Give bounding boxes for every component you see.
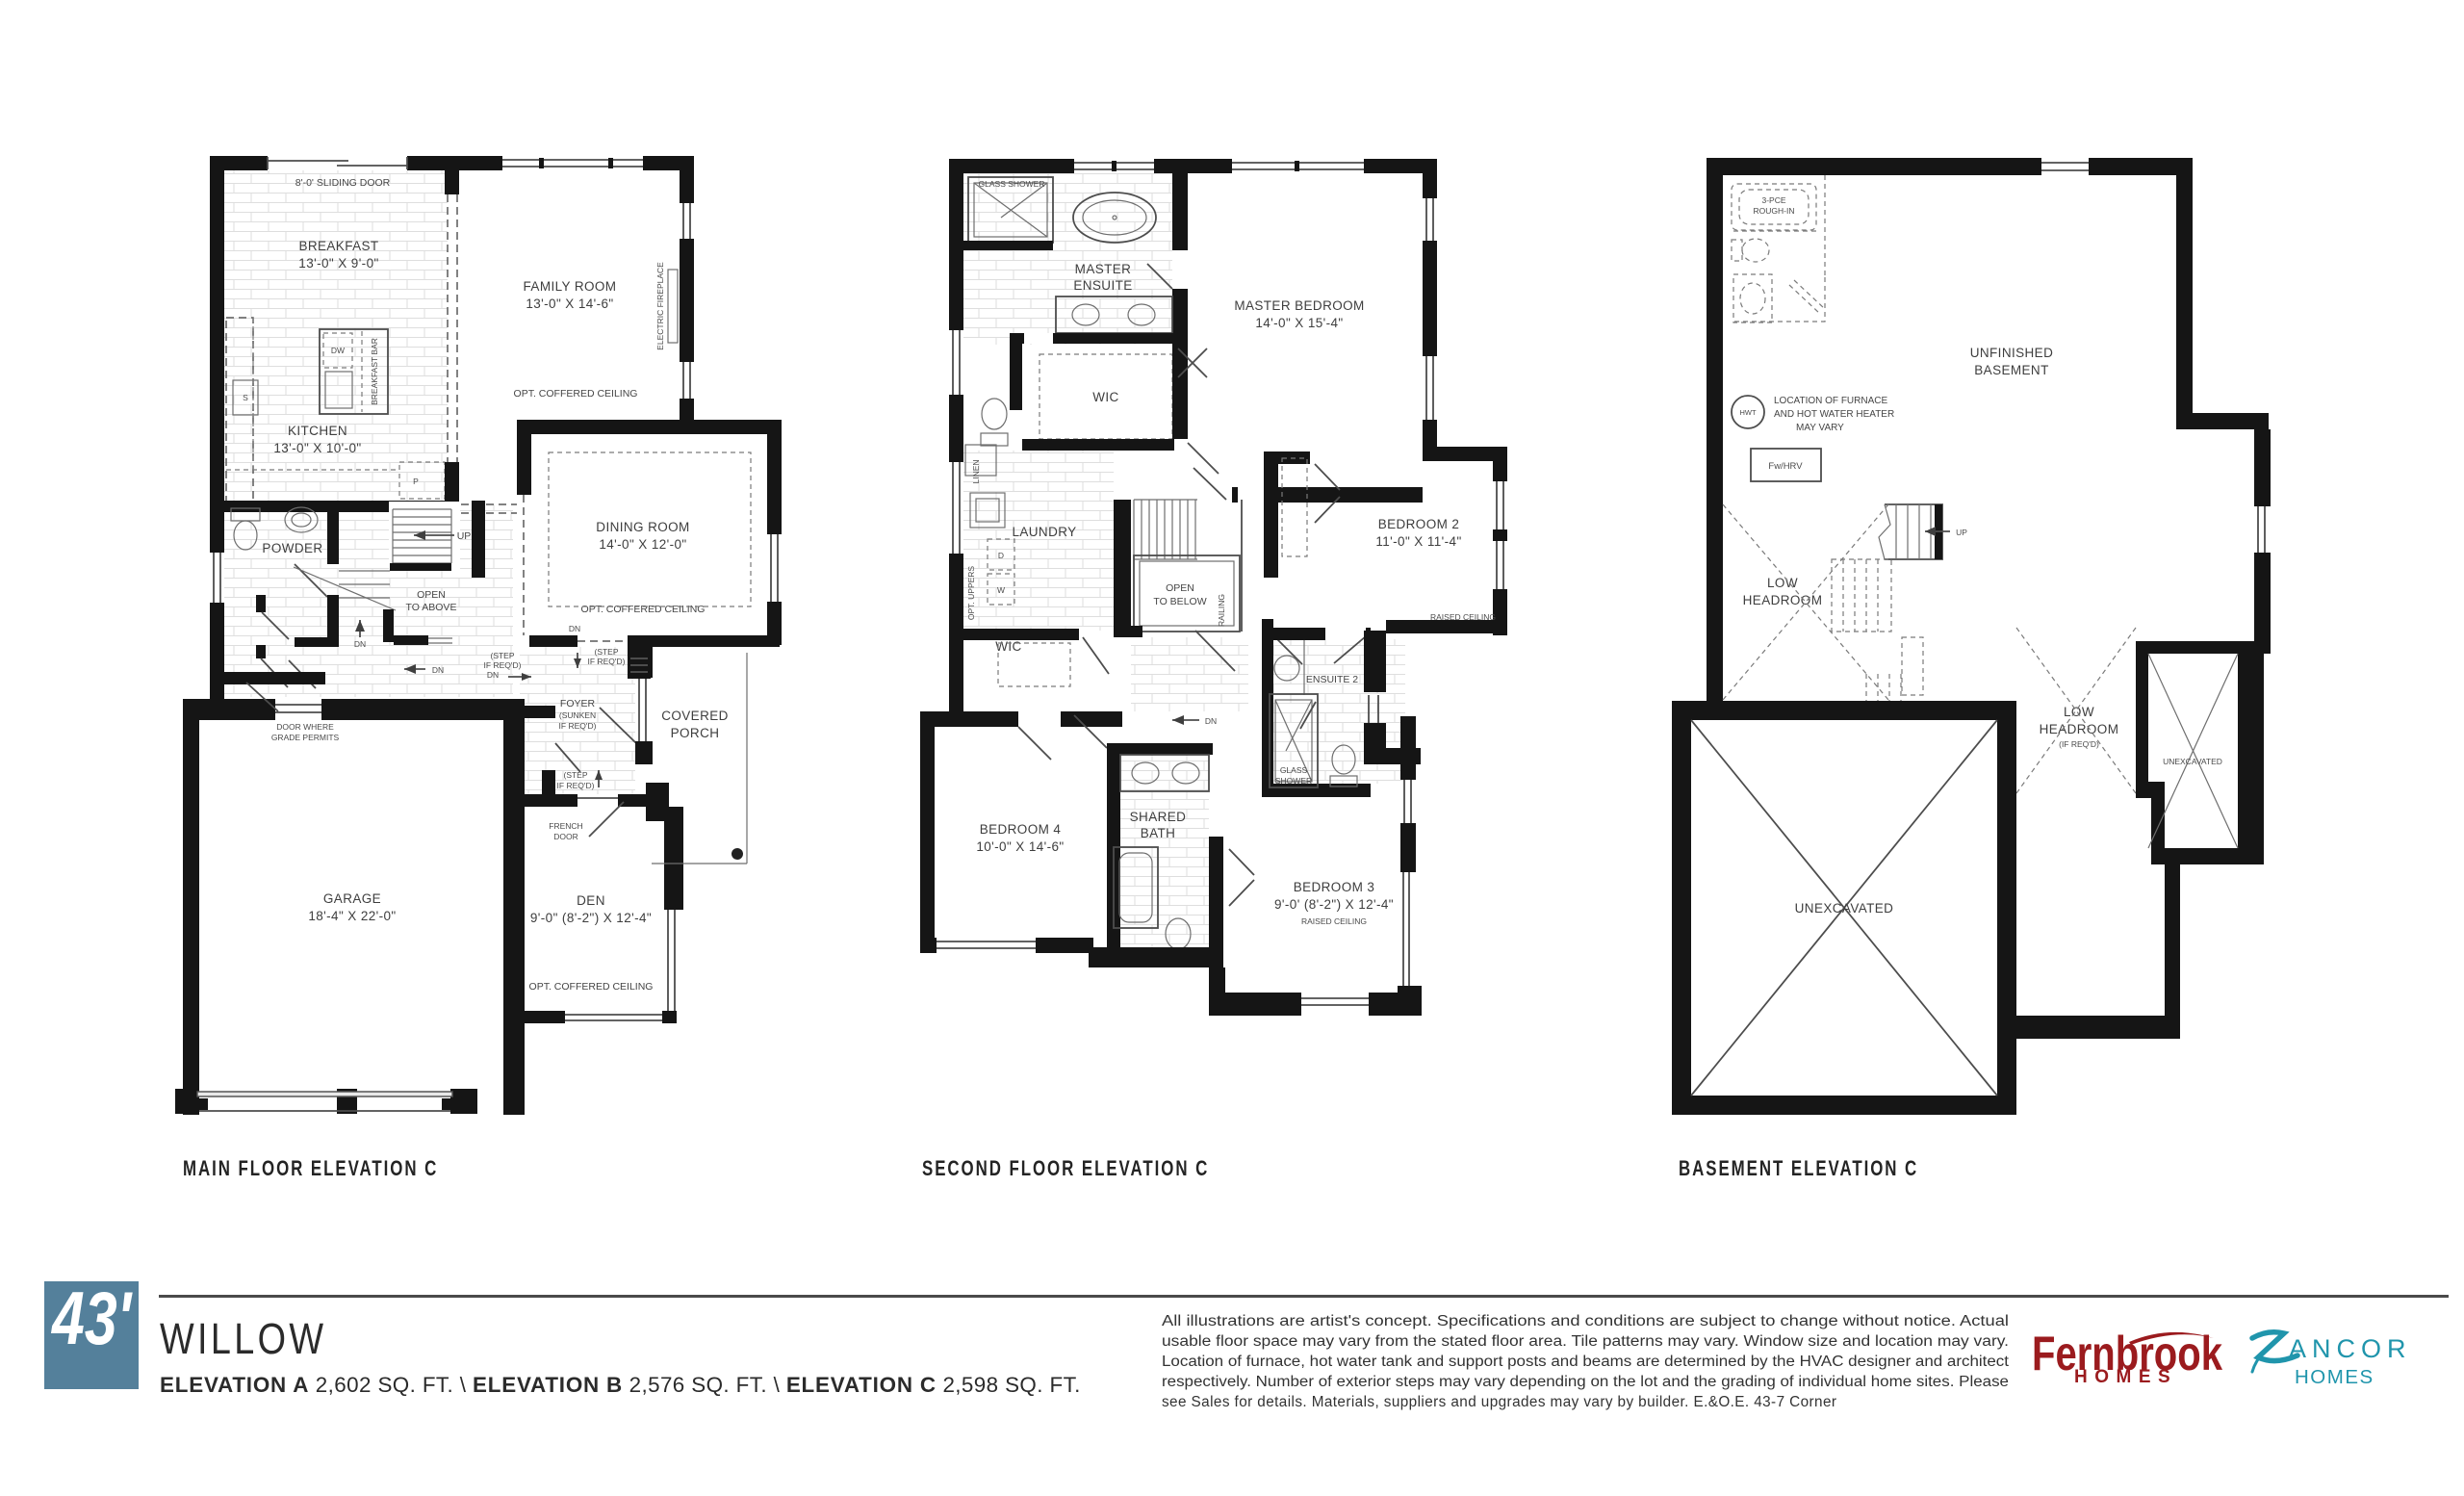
svg-text:LOW: LOW — [1767, 576, 1798, 590]
svg-text:UNEXCAVATED: UNEXCAVATED — [1795, 901, 1894, 916]
svg-text:13'-0" X 14'-6": 13'-0" X 14'-6" — [526, 297, 613, 311]
svg-text:Location of furnace, hot water: Location of furnace, hot water tank and … — [1162, 1354, 2010, 1370]
svg-text:18'-4" X 22'-0": 18'-4" X 22'-0" — [308, 909, 396, 923]
svg-text:GLASS SHOWER: GLASS SHOWER — [979, 179, 1045, 189]
svg-text:GLASS: GLASS — [1280, 765, 1308, 775]
svg-text:OPT. COFFERED CEILING: OPT. COFFERED CEILING — [514, 388, 638, 400]
svg-text:HOMES: HOMES — [2074, 1367, 2177, 1387]
svg-text:UNFINISHED: UNFINISHED — [1970, 346, 2054, 360]
svg-text:HEADROOM: HEADROOM — [1743, 593, 1823, 607]
svg-text:(STEP: (STEP — [563, 770, 587, 780]
svg-text:UP: UP — [1956, 528, 1967, 537]
svg-text:HWT: HWT — [1739, 408, 1756, 417]
svg-text:9'-0' (8'-2") X 12'-4": 9'-0' (8'-2") X 12'-4" — [1274, 897, 1394, 912]
svg-text:IF REQ'D): IF REQ'D) — [557, 781, 595, 790]
svg-text:WILLOW: WILLOW — [160, 1314, 326, 1363]
svg-text:9'-0" (8'-2") X 12'-4": 9'-0" (8'-2") X 12'-4" — [530, 911, 652, 925]
svg-text:BREAKFAST BAR: BREAKFAST BAR — [370, 338, 379, 405]
svg-text:MAY VARY: MAY VARY — [1796, 423, 1844, 433]
svg-text:RAISED CEILING: RAISED CEILING — [1301, 916, 1367, 926]
svg-text:W: W — [997, 585, 1005, 595]
svg-text:DN: DN — [487, 670, 499, 680]
svg-text:SHOWER: SHOWER — [1275, 776, 1312, 786]
svg-text:usable floor space may vary fr: usable floor space may vary from the sta… — [1162, 1333, 2009, 1350]
svg-text:(SUNKEN: (SUNKEN — [559, 710, 596, 720]
svg-text:8'-0' SLIDING DOOR: 8'-0' SLIDING DOOR — [295, 177, 391, 189]
svg-text:BREAKFAST: BREAKFAST — [298, 239, 378, 253]
svg-text:HOMES: HOMES — [2295, 1366, 2374, 1388]
svg-text:Fw/HRV: Fw/HRV — [1768, 461, 1803, 472]
svg-text:LAUNDRY: LAUNDRY — [1012, 525, 1076, 539]
svg-text:respectively. Number of exteri: respectively. Number of exterior steps m… — [1162, 1374, 2009, 1390]
svg-text:13'-0" X 9'-0": 13'-0" X 9'-0" — [298, 256, 378, 271]
svg-text:MAIN FLOOR ELEVATION C: MAIN FLOOR ELEVATION C — [183, 1157, 438, 1181]
svg-text:UNEXCAVATED: UNEXCAVATED — [2163, 757, 2222, 766]
svg-text:BASEMENT ELEVATION C: BASEMENT ELEVATION C — [1679, 1157, 1918, 1181]
svg-text:RAISED CEILING: RAISED CEILING — [1430, 612, 1496, 622]
svg-text:D: D — [998, 551, 1004, 560]
svg-text:OPEN: OPEN — [417, 589, 446, 601]
svg-text:(STEP: (STEP — [594, 647, 618, 657]
svg-text:MASTER: MASTER — [1075, 262, 1132, 276]
svg-text:DN: DN — [432, 665, 444, 675]
svg-text:DN: DN — [354, 639, 366, 649]
svg-text:OPT. UPPERS: OPT. UPPERS — [966, 566, 976, 621]
svg-text:ELEVATION A 2,602 SQ. FT. \: ELEVATION A 2,602 SQ. FT. \ ELEVATION B … — [160, 1373, 1081, 1397]
svg-text:OPT. COFFERED CEILING: OPT. COFFERED CEILING — [581, 604, 706, 615]
svg-text:DOOR WHERE: DOOR WHERE — [276, 722, 334, 732]
svg-text:FOYER: FOYER — [560, 698, 596, 709]
svg-text:(STEP: (STEP — [490, 651, 514, 660]
svg-text:SECOND FLOOR ELEVATION C: SECOND FLOOR ELEVATION C — [922, 1157, 1209, 1181]
svg-text:13'-0" X 10'-0": 13'-0" X 10'-0" — [273, 441, 361, 455]
svg-text:DN: DN — [569, 624, 580, 633]
svg-text:14'-0" X 12'-0": 14'-0" X 12'-0" — [599, 537, 686, 552]
svg-text:COVERED: COVERED — [661, 709, 729, 723]
svg-text:P: P — [413, 477, 419, 486]
svg-text:LINEN: LINEN — [971, 459, 981, 483]
svg-text:43': 43' — [50, 1277, 133, 1360]
svg-text:AND HOT WATER HEATER: AND HOT WATER HEATER — [1774, 409, 1894, 420]
svg-text:FRENCH: FRENCH — [549, 821, 582, 831]
svg-text:DW: DW — [331, 346, 345, 355]
svg-text:RAILING: RAILING — [1217, 594, 1226, 627]
svg-text:10'-0" X 14'-6": 10'-0" X 14'-6" — [976, 839, 1064, 854]
svg-text:ELECTRIC FIREPLACE: ELECTRIC FIREPLACE — [655, 262, 665, 350]
svg-text:MASTER BEDROOM: MASTER BEDROOM — [1234, 298, 1364, 313]
svg-text:LOCATION OF FURNACE: LOCATION OF FURNACE — [1774, 396, 1887, 406]
svg-text:GRADE PERMITS: GRADE PERMITS — [271, 733, 340, 742]
svg-text:BEDROOM 4: BEDROOM 4 — [980, 822, 1062, 837]
svg-text:IF REQ'D): IF REQ'D) — [484, 660, 522, 670]
svg-text:HEADROOM: HEADROOM — [2040, 722, 2119, 736]
svg-text:SHARED: SHARED — [1130, 810, 1187, 824]
svg-text:ANCOR: ANCOR — [2289, 1334, 2412, 1363]
svg-text:TO BELOW: TO BELOW — [1153, 596, 1206, 607]
svg-text:WIC: WIC — [995, 639, 1021, 654]
svg-text:ENSUITE: ENSUITE — [1073, 278, 1132, 293]
svg-text:DN: DN — [1205, 716, 1217, 726]
svg-text:3-PCE: 3-PCE — [1761, 195, 1785, 205]
svg-text:WIC: WIC — [1092, 390, 1118, 404]
svg-text:S: S — [243, 393, 248, 402]
svg-text:ENSUITE 2: ENSUITE 2 — [1306, 674, 1358, 685]
svg-text:OPEN: OPEN — [1166, 582, 1194, 594]
svg-text:14'-0" X 15'-4": 14'-0" X 15'-4" — [1255, 316, 1343, 330]
svg-text:BEDROOM 2: BEDROOM 2 — [1378, 517, 1460, 531]
svg-text:BASEMENT: BASEMENT — [1974, 363, 2048, 377]
svg-text:PORCH: PORCH — [671, 726, 720, 740]
svg-text:11'-0" X 11'-4": 11'-0" X 11'-4" — [1375, 534, 1461, 549]
svg-text:DEN: DEN — [577, 893, 605, 908]
svg-text:IF REQ'D): IF REQ'D) — [559, 721, 597, 731]
svg-text:FAMILY ROOM: FAMILY ROOM — [524, 279, 617, 294]
svg-text:UP: UP — [457, 530, 472, 542]
svg-text:DINING ROOM: DINING ROOM — [596, 520, 689, 534]
svg-text:DOOR: DOOR — [553, 832, 578, 841]
svg-text:BATH: BATH — [1141, 826, 1176, 840]
svg-text:see Sales for details. Materia: see Sales for details. Materials, suppli… — [1162, 1394, 1836, 1410]
svg-text:POWDER: POWDER — [262, 541, 322, 555]
svg-text:GARAGE: GARAGE — [323, 891, 381, 906]
svg-text:KITCHEN: KITCHEN — [288, 424, 347, 438]
svg-text:OPT. COFFERED CEILING: OPT. COFFERED CEILING — [529, 981, 654, 993]
svg-text:TO ABOVE: TO ABOVE — [406, 602, 457, 613]
svg-text:BEDROOM 3: BEDROOM 3 — [1294, 880, 1375, 894]
svg-text:(IF REQ'D): (IF REQ'D) — [2059, 739, 2099, 749]
svg-text:ROUGH-IN: ROUGH-IN — [1754, 206, 1795, 216]
svg-text:IF REQ'D): IF REQ'D) — [588, 657, 626, 666]
svg-text:All illustrations are artist's: All illustrations are artist's concept. … — [1162, 1313, 2009, 1329]
